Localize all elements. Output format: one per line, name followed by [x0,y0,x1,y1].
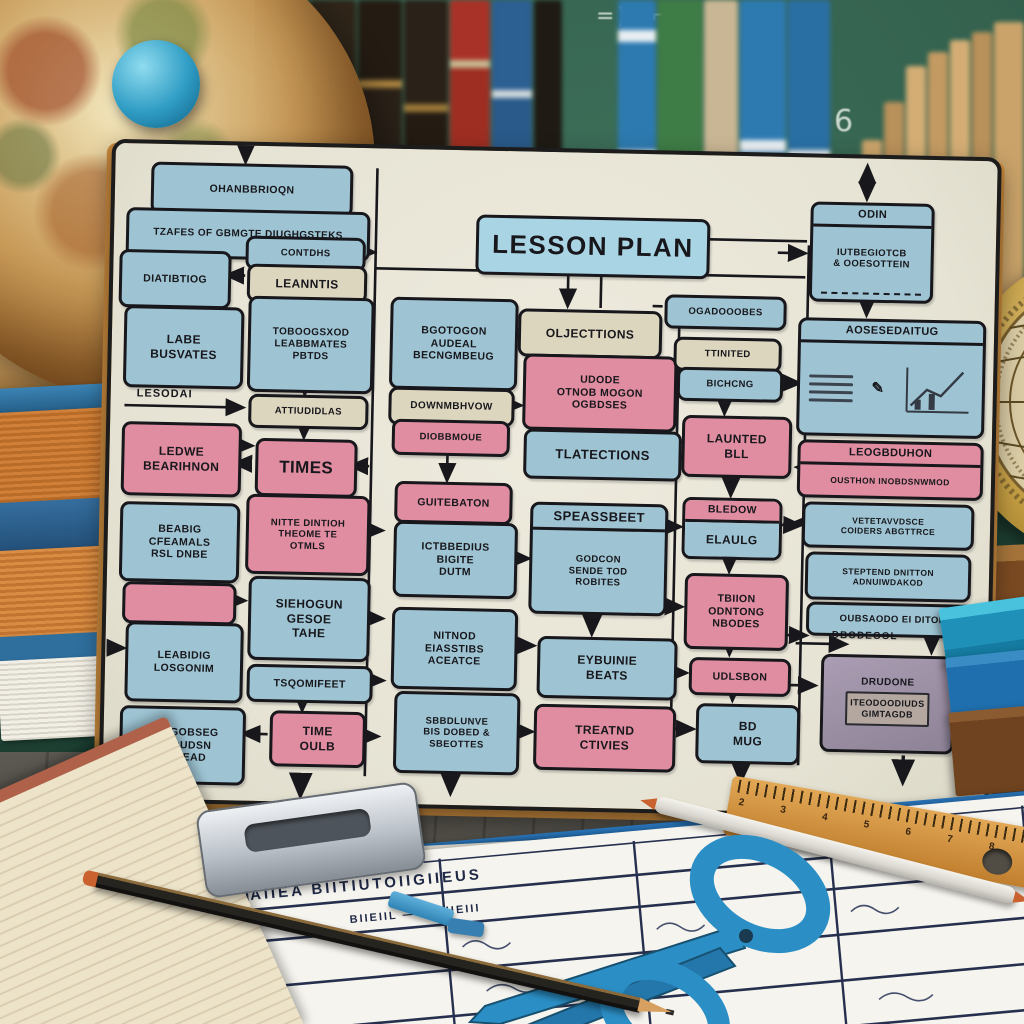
flow-node-assessment: AOSESEDAITUG ✎ [796,317,986,439]
classroom-scene: 2 ∂∅ ˈg − =)⁴ ⌐ 6 ≠ [0,0,1024,1024]
flow-node-launted: LAUNTED BLL [681,415,792,479]
flow-node-eybu: EYBUINIE BEATS [536,636,677,701]
flow-node-speass-body: GODCON SENDE TOD ROBITES [531,530,665,614]
flow-node-timeoulb: TIME OULB [269,710,366,768]
flow-node-vete: VETETAVVDSCE COIDERS ABGTTRCE [802,501,975,551]
flow-node-leogod-body: OUSTHON INOBDSNWMOD [800,465,981,498]
assessment-sketch: ✎ [796,343,986,437]
lesson-plan-poster: OHANBBRIOQN TZAFES OF GBMGTE DIUGHGSTEKS… [98,139,1002,820]
flow-node-diobr: DIOBBMOUE [391,419,510,457]
label-dbodegol: DBODEGOL [832,630,898,642]
flow-node-ogado: OGADOOOBES [664,294,787,331]
flow-node-stenogun: SIEHOGUN GESOE TAHE [247,576,371,663]
document-lines-icon [809,369,854,407]
brown-book [949,704,1024,797]
flow-node-drudone-header: DRUDONE [822,673,954,691]
flow-node-attind: ATTIUDIDLAS [248,394,369,431]
flow-node-leabig: LEABIDIG LOSGONIM [124,621,244,703]
flow-node-treatnd: TREATND CTIVIES [533,704,676,773]
flow-node-bdnug: BD MUG [695,703,800,765]
flow-node-odin-body: IUTBEGIOTCB & OOESOTTEIN [812,227,931,291]
flow-node-tlatect: TLATECTIONS [523,428,682,481]
flow-node-tobo: TOBOOGSXOD LEABBMATES PBTDS [247,296,375,395]
flow-node-bledow: BLEDOW ELAULG [681,497,782,561]
flow-node-drudone-body: ITEODOODIUDS GIMTAGDB [845,691,930,727]
flow-node-odin: ODIN IUTBEGIOTCB & OOESOTTEIN [809,201,935,304]
flow-node-leogod: LEOGBDUHON OUSTHON INOBDSNWMOD [797,439,984,501]
chart-sketch-icon [902,362,973,419]
flow-node-beabig: BEABIG CFEAMALS RSL DNBE [119,501,241,583]
flow-node-tbnon: TBIION ODNTONG NBODES [683,573,789,651]
flow-node-bgotogon: BGOTOGON AUDEAL BECNGMBEUG [389,297,519,392]
label-lesodai: LESODAI [137,387,193,400]
flow-node-stept: STEPTEND DNITTON ADNUIWDAKOD [805,551,972,602]
flow-node-speass: SPEASSBEET GODCON SENDE TOD ROBITES [528,502,668,617]
pencil-icon: ✎ [871,380,884,399]
flow-node-udode: UDODE OTNOB MOGON OGBDSES [522,353,678,432]
flow-node-odin-header: ODIN [811,204,933,229]
scissors [430,826,870,1024]
flow-node-suited: GUITEBATON [394,481,513,525]
flow-node-objections: OLJECTTIONS [518,308,663,359]
blue-sphere [112,40,200,128]
flow-node-bicn: BICHCNG [677,367,784,403]
flow-node-ictbb: ICTBBEDIUS BIGITE DUTM [393,521,519,600]
flow-node-nitte: NITTE DINTIOH THEOME TE OTMLS [245,494,371,577]
dashed-rule [821,292,920,296]
flow-node-drudone: DRUDONE ITEODOODIUDS GIMTAGDB [819,654,955,755]
flow-node-times: TIMES [255,438,358,498]
flow-node-blank [122,581,237,625]
flow-node-labe: LABE BUSVATES [123,305,245,389]
flow-node-nitnod: NITNOD EIASSTIBS ACEATCE [391,607,519,692]
flow-node-speass-header: SPEASSBEET [531,505,667,533]
pencil-lead [665,1009,674,1016]
flow-node-sebdl: SBBDLUNVE BIS DOBED & SBEOTTES [393,691,521,776]
poster-title: LESSON PLAN [475,214,710,279]
flow-node-ledne: LEDWE BEARIHNON [121,421,243,497]
flow-node-tsqom: TSQOMIFEET [246,664,373,705]
flow-node-diatibtiog: DIATIBTIOG [119,249,232,309]
flow-node-bledow-header: BLEDOW [683,500,781,524]
flow-node-elaulg: ELAULG [684,522,779,558]
flow-node-ulsson: UDLSBON [689,657,792,697]
